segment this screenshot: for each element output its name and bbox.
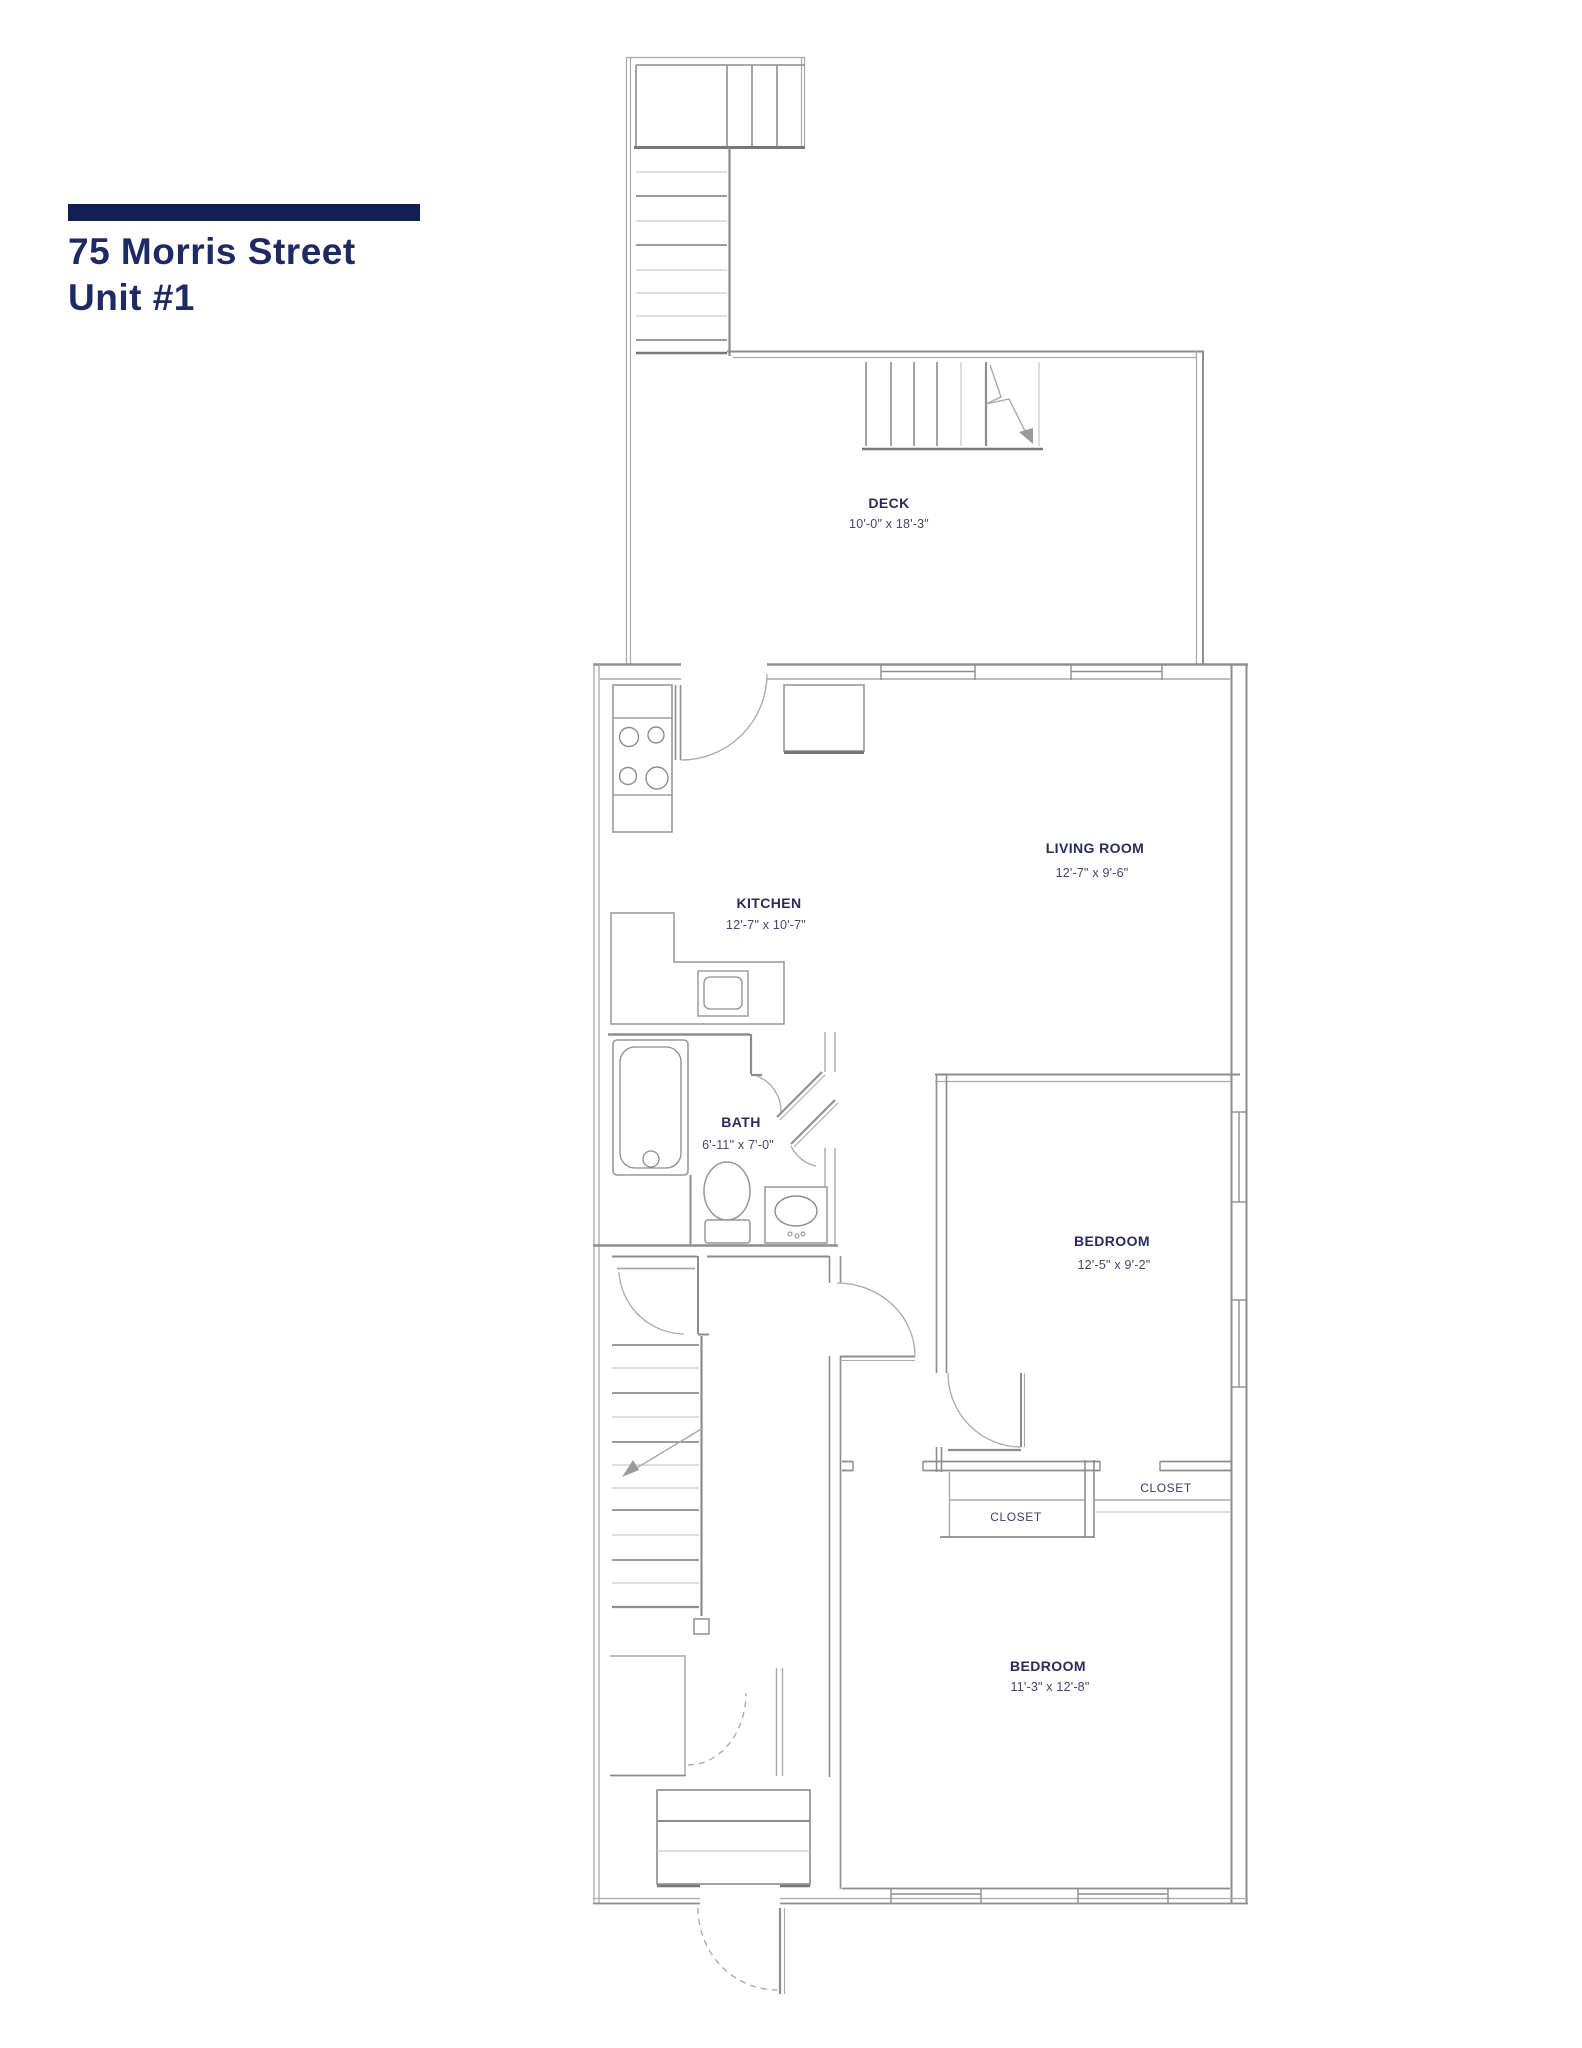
deck-dimensions: 10'-0" x 18'-3" [849,517,929,531]
hall-door [837,1283,915,1361]
closet-right-label: CLOSET [1140,1481,1192,1495]
interior-stairs [612,1336,709,1634]
kitchen-deck-door [676,674,768,760]
bathtub-icon [613,1040,688,1175]
bedroom1-label: BEDROOM [1074,1233,1150,1249]
floorplan-drawing: DECK 10'-0" x 18'-3" [0,0,1582,2048]
closet-walls [842,1460,1231,1538]
floorplan-page: 75 Morris Street Unit #1 [0,0,1582,2048]
deck-stairs [862,362,1043,449]
bath-vanity-sink-icon [765,1187,827,1243]
entry-vestibule [657,1790,810,1886]
living-room-dimensions: 12'-7" x 9'-6" [1056,866,1129,880]
bath-label: BATH [721,1114,760,1130]
entry-landing [612,1256,829,1335]
bedroom2-label: BEDROOM [1010,1658,1086,1674]
kitchen-refrigerator-icon [784,685,864,753]
bedroom2-dimensions: 11'-3" x 12'-8" [1011,1680,1090,1694]
bath-dimensions: 6'-11" x 7'-0" [702,1138,774,1152]
upper-exterior-stairs [626,57,805,665]
unit-top-wall [593,664,1248,680]
unit-left-wall [594,664,599,1904]
under-stair-closet [610,1656,783,1776]
toilet-icon [704,1162,750,1243]
front-door [698,1908,785,1994]
deck-walls [727,351,1204,664]
kitchen-stove-icon [613,685,672,832]
living-room-south-wall [935,1075,1240,1082]
bedroom1-door [948,1373,1025,1447]
living-room-label: LIVING ROOM [1046,840,1145,856]
kitchen-label: KITCHEN [736,895,801,911]
deck-label: DECK [868,495,909,511]
hall-wall [830,1256,841,1889]
stair-direction-arrow [986,365,1028,437]
closet-left-label: CLOSET [990,1510,1042,1524]
kitchen-dimensions: 12'-7" x 10'-7" [726,918,806,932]
unit-bottom-wall [593,1888,1248,1904]
bedroom1-dimensions: 12'-5" x 9'-2" [1078,1258,1151,1272]
unit-right-wall [1232,664,1247,1904]
bedroom1-walls [937,1074,1022,1472]
